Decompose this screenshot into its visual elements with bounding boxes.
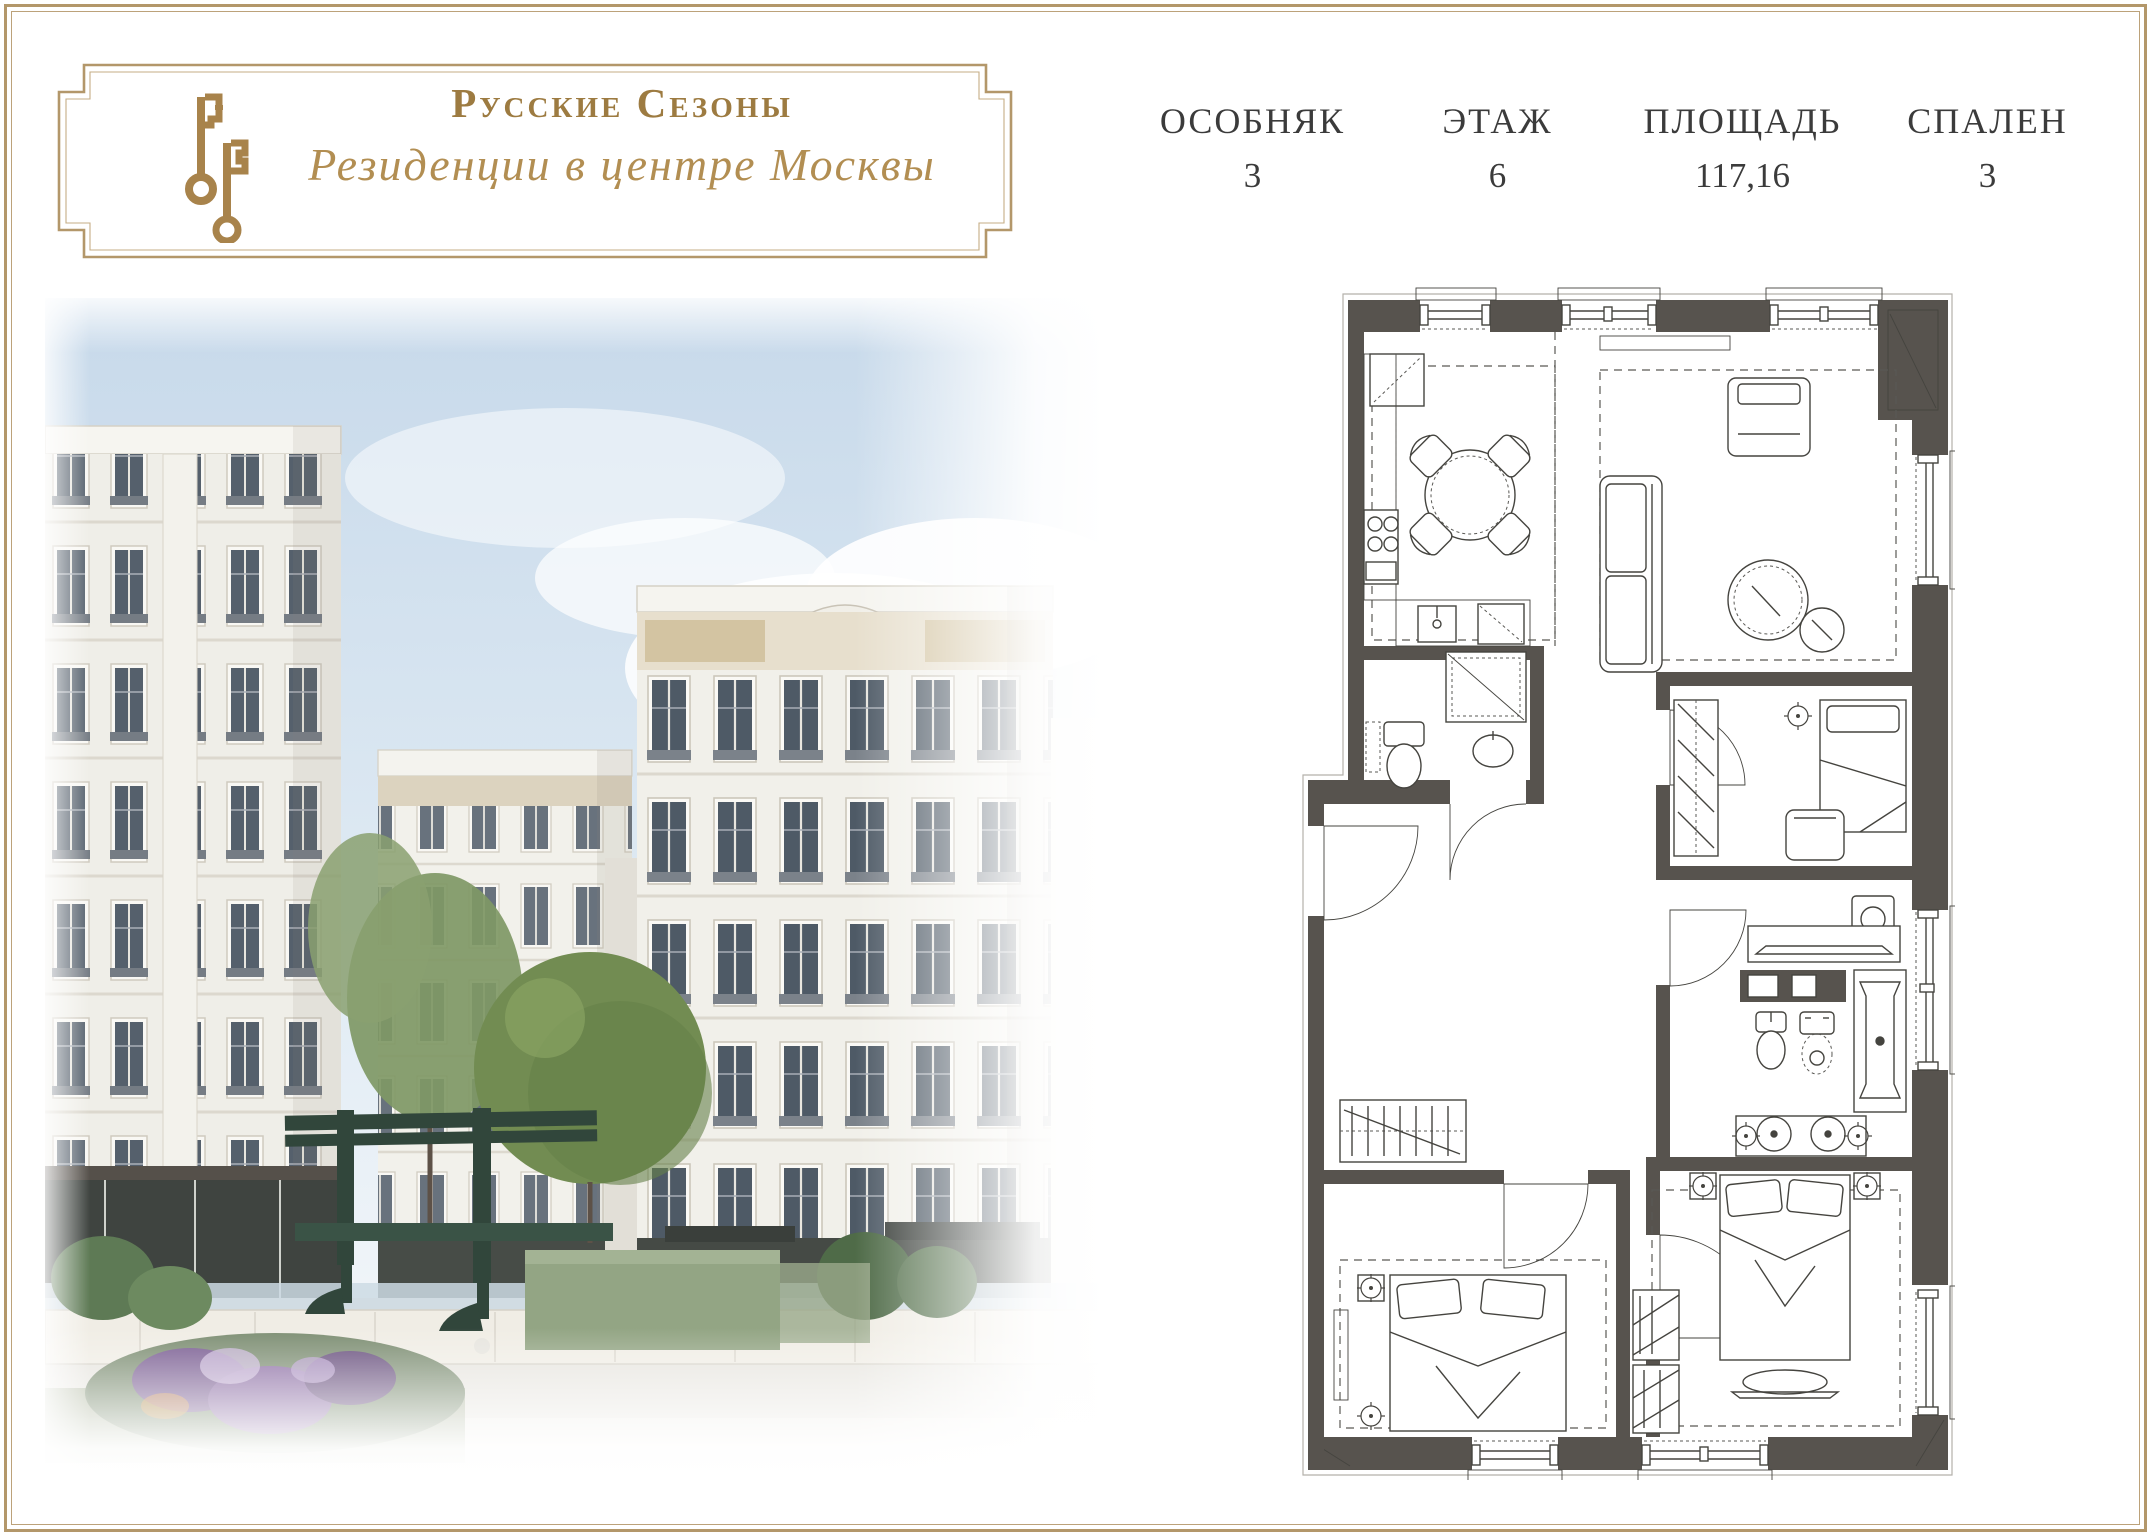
master-bedroom-area xyxy=(1633,1172,1881,1433)
guest-bathroom-area xyxy=(1366,652,1526,880)
spec-value: 117,16 xyxy=(1620,156,1865,196)
unit-specs-row: ОСОБНЯК 3 ЭТАЖ 6 ПЛОЩАДЬ 117,16 СПАЛЕН 3 xyxy=(1130,100,2110,220)
brand-subtitle: Резиденции в центре Москвы xyxy=(272,138,972,191)
brochure-page: { "page": { "background": "#ffffff", "bo… xyxy=(0,0,2152,1537)
spec-column-mansion: ОСОБНЯК 3 xyxy=(1130,100,1375,220)
courtyard-scene-illustration xyxy=(45,298,1105,1478)
flower-bed xyxy=(85,1333,465,1453)
brand-frame: Русские Сезоны Резиденции в центре Москв… xyxy=(57,63,1013,259)
double-keys-icon xyxy=(175,85,253,243)
right-building xyxy=(637,586,1053,1311)
courtyard-rendering xyxy=(45,298,1105,1478)
left-building xyxy=(45,426,341,1298)
spec-label: СПАЛЕН xyxy=(1865,100,2110,142)
floor-plan: .wl{fill:#57534e;} .ln{stroke:#45443f;st… xyxy=(1300,270,1955,1480)
kitchen-area xyxy=(1364,354,1536,646)
spec-label: ОСОБНЯК xyxy=(1130,100,1375,142)
entry-hall-area xyxy=(1324,826,1466,1162)
bedroom-2-area xyxy=(1334,1184,1588,1431)
spec-label: ЭТАЖ xyxy=(1375,100,1620,142)
spec-label: ПЛОЩАДЬ xyxy=(1620,100,1865,142)
spec-column-bedrooms: СПАЛЕН 3 xyxy=(1865,100,2110,220)
spec-value: 6 xyxy=(1375,156,1620,196)
floor-plan-drawing: .wl{fill:#57534e;} .ln{stroke:#45443f;st… xyxy=(1300,270,1955,1480)
living-room-area xyxy=(1600,336,1844,672)
spec-value: 3 xyxy=(1865,156,2110,196)
bedroom-1-area xyxy=(1670,700,1906,860)
spec-column-floor: ЭТАЖ 6 xyxy=(1375,100,1620,220)
spec-value: 3 xyxy=(1130,156,1375,196)
brand-text-block: Русские Сезоны Резиденции в центре Москв… xyxy=(272,81,972,191)
master-bathroom-area xyxy=(1670,896,1906,1156)
spec-column-area: ПЛОЩАДЬ 117,16 xyxy=(1620,100,1865,220)
brand-title: Русские Сезоны xyxy=(272,81,972,126)
